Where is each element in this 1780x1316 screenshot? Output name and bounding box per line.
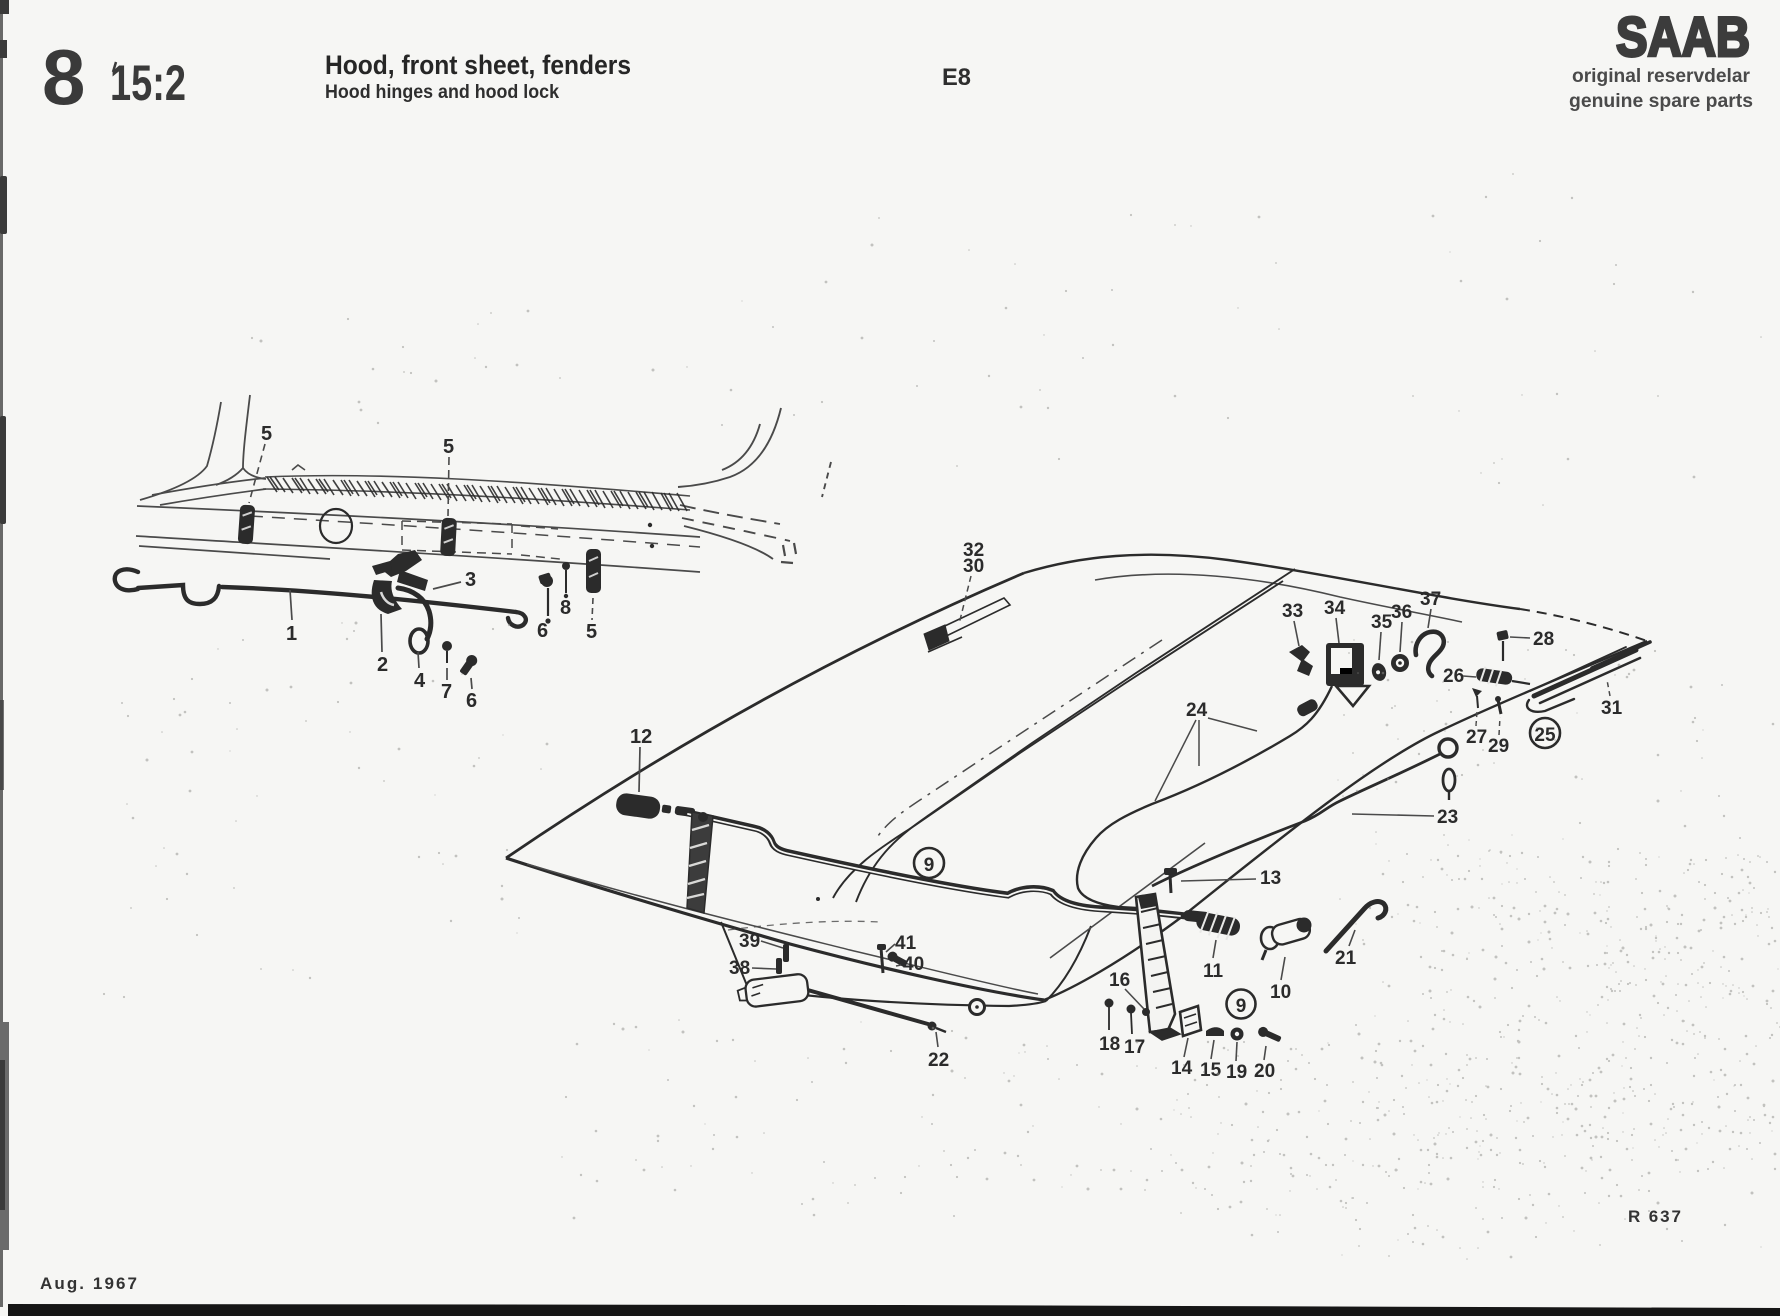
svg-text:4: 4 [414,670,426,692]
svg-text:9: 9 [924,855,935,876]
svg-text:27: 27 [1466,727,1487,748]
svg-text:31: 31 [1601,698,1623,719]
svg-text:1: 1 [286,623,297,645]
svg-text:6: 6 [537,620,548,642]
svg-text:7: 7 [441,681,452,703]
svg-text:26: 26 [1443,666,1464,687]
svg-text:33: 33 [1282,601,1303,622]
svg-text:37: 37 [1420,589,1441,610]
svg-text:14: 14 [1171,1058,1193,1079]
svg-text:12: 12 [630,726,652,748]
svg-text:E8: E8 [942,64,971,91]
svg-text:13: 13 [1260,868,1281,889]
svg-text:Hood, front sheet, fenders: Hood, front sheet, fenders [325,50,631,80]
svg-text:3: 3 [465,569,476,591]
svg-text:28: 28 [1533,629,1554,650]
svg-text:23: 23 [1437,807,1458,828]
svg-text:15: 15 [1200,1060,1222,1081]
svg-text:40: 40 [903,954,924,975]
svg-text:2: 2 [377,654,388,676]
svg-text:29: 29 [1488,736,1509,757]
svg-text:Aug. 1967: Aug. 1967 [40,1274,137,1293]
svg-text:36: 36 [1391,602,1412,623]
svg-text:original reservdelar: original reservdelar [1572,66,1751,87]
svg-text:15:2: 15:2 [110,55,186,111]
svg-text:5: 5 [443,436,454,458]
svg-text:19: 19 [1226,1062,1247,1083]
svg-text:39: 39 [739,931,760,952]
svg-text:genuine spare parts: genuine spare parts [1569,91,1753,112]
svg-text:24: 24 [1186,700,1208,721]
svg-text:22: 22 [928,1050,949,1071]
svg-text:8: 8 [42,33,85,121]
svg-text:34: 34 [1324,598,1346,619]
svg-text:35: 35 [1371,612,1393,633]
svg-text:17: 17 [1124,1037,1145,1058]
svg-text:38: 38 [729,958,750,979]
svg-text:8: 8 [560,597,571,619]
svg-text:18: 18 [1099,1034,1120,1055]
svg-text:41: 41 [895,933,917,954]
svg-text:20: 20 [1254,1061,1275,1082]
svg-text:16: 16 [1109,970,1130,991]
svg-text:5: 5 [261,423,272,445]
svg-text:9: 9 [1236,996,1247,1017]
svg-text:R 637: R 637 [1628,1207,1681,1226]
svg-text:10: 10 [1270,982,1291,1003]
svg-text:5: 5 [586,621,597,643]
svg-text:30: 30 [963,556,984,577]
svg-text:6: 6 [466,690,477,712]
svg-text:Hood hinges and hood lock: Hood hinges and hood lock [325,82,559,103]
svg-text:21: 21 [1335,948,1357,969]
svg-text:SAAB: SAAB [1616,5,1750,68]
svg-text:11: 11 [1203,961,1224,982]
